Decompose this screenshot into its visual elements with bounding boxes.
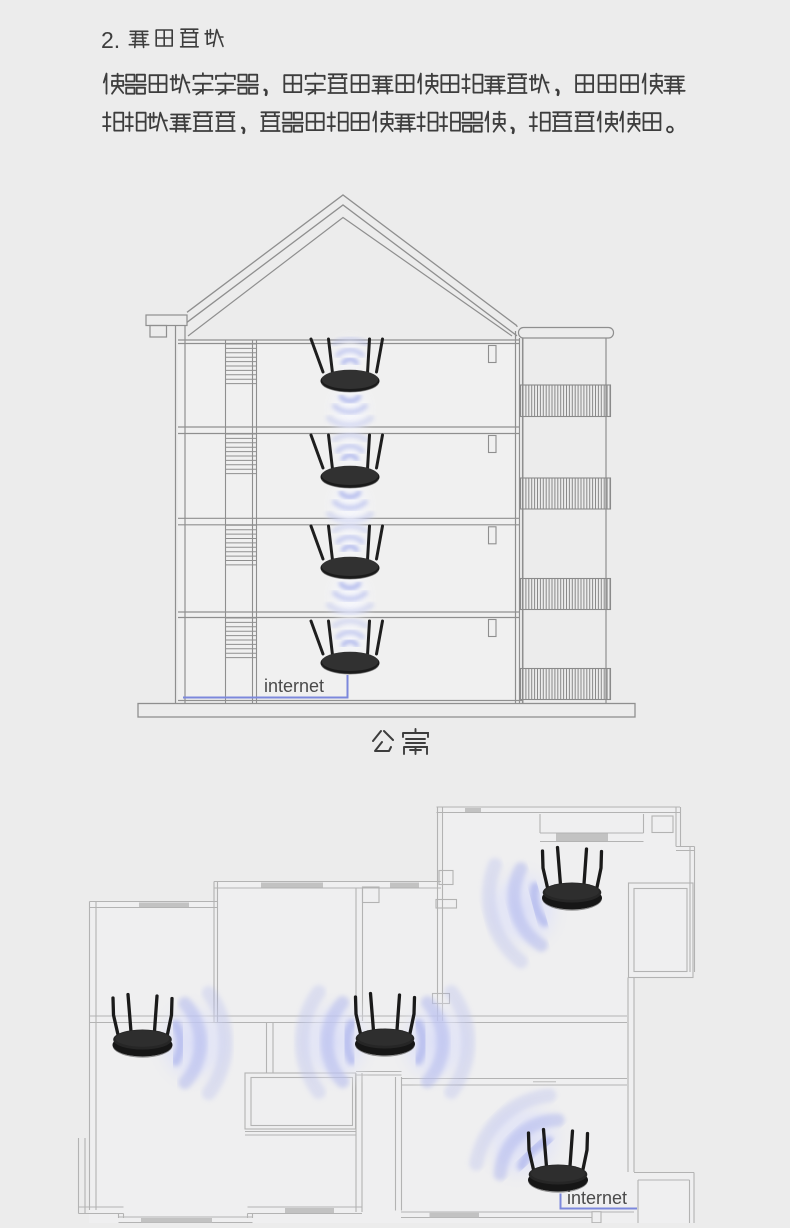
svg-text:internet: internet (567, 1188, 627, 1208)
svg-text:internet: internet (264, 676, 324, 696)
svg-text:2.: 2. (101, 27, 120, 53)
